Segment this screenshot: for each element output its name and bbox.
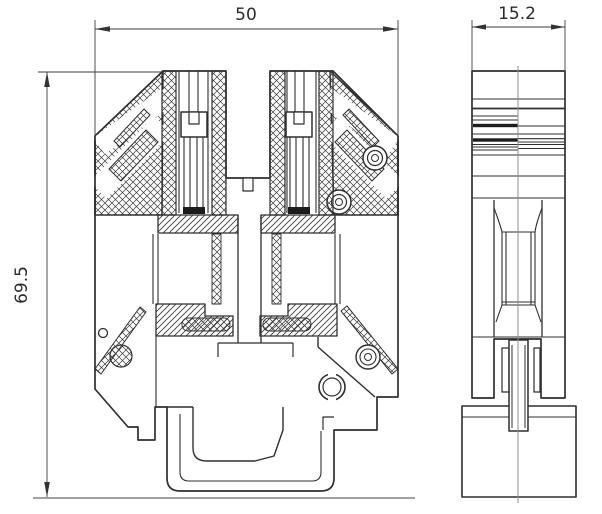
right-screw-slot <box>294 112 304 124</box>
dimension-depth: 15.2 <box>472 4 565 71</box>
left-contact <box>183 207 205 214</box>
front-section-view <box>95 71 398 491</box>
left-spring-boss <box>110 345 132 367</box>
arrow-top <box>44 72 50 87</box>
arrow-right <box>383 26 398 32</box>
arrow-bottom <box>44 482 50 497</box>
depth-dimension-label: 15.2 <box>498 4 536 24</box>
partition-notch <box>243 178 253 191</box>
height-dimension-label: 69.5 <box>12 266 32 304</box>
side-view <box>462 66 576 503</box>
left-wire-entry-block <box>95 71 168 215</box>
right-clamp-yoke <box>272 234 281 304</box>
arrow-right <box>551 24 565 29</box>
arrow-left <box>95 26 110 32</box>
right-wire-entry-block <box>325 71 398 215</box>
left-screw-slot <box>189 112 199 124</box>
width-dimension-label: 50 <box>235 5 257 25</box>
small-hole <box>99 329 108 338</box>
technical-drawing-canvas: 50 69.5 15.2 <box>0 0 602 514</box>
socket-screw-upper <box>363 146 387 170</box>
terminal-block-drawing: 50 69.5 15.2 <box>0 0 602 514</box>
arrow-left <box>472 24 486 29</box>
latch-screw <box>356 345 380 369</box>
left-clamp-yoke <box>212 234 221 304</box>
right-contact <box>288 207 310 214</box>
